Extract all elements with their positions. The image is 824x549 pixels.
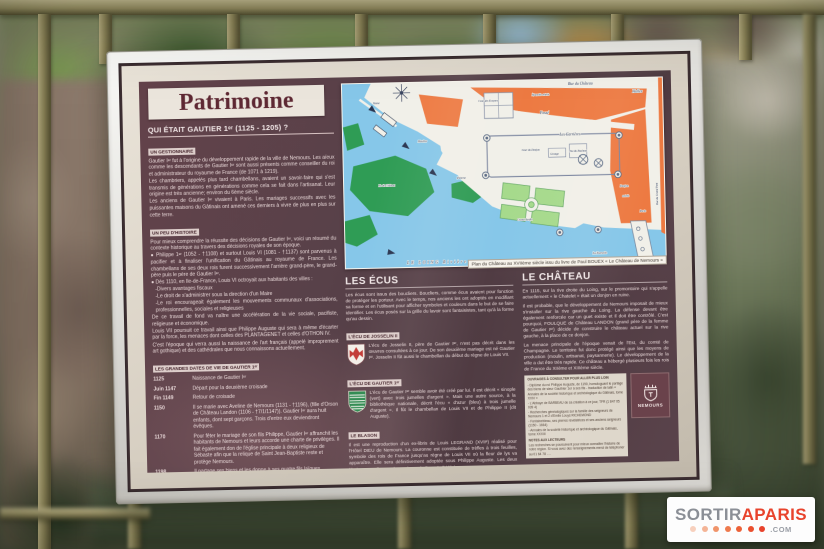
chateau-heading: LE CHÂTEAU — [522, 269, 667, 285]
section-label-josselin: L'ÉCU DE JOSSELIN II — [346, 332, 399, 340]
watermark-sortir: SORTIR — [675, 505, 742, 524]
photo-scene: Patrimoine QUI ÉTAIT GAUTIER 1ᵉʳ (1125 -… — [0, 0, 824, 549]
panel-right-column: Rue du Château Nouvelle entrée Halles Fo… — [341, 76, 671, 462]
paragraph: Les anciens de Gautier Iᵉʳ vivaient à Pa… — [149, 195, 335, 219]
references-row: OUVRAGES À CONSULTER POUR ALLER PLUS LOI… — [524, 373, 671, 459]
timeline-date: 1198 — [155, 469, 190, 473]
timeline-date: Juin 1147 — [153, 386, 188, 393]
map-label: Rue du Château — [567, 81, 593, 86]
reference-item: - Annales de la société historique et ar… — [528, 426, 624, 437]
watermark-text: SORTIRAPARIS — [675, 506, 807, 523]
map-label: Porte — [639, 210, 647, 213]
timeline-event: Pour fêter le mariage de son fils Philip… — [193, 430, 341, 466]
board-mat: Patrimoine QUI ÉTAIT GAUTIER 1ᵉʳ (1125 -… — [121, 54, 696, 489]
board-frame: Patrimoine QUI ÉTAIT GAUTIER 1ᵉʳ (1125 -… — [106, 39, 712, 505]
panel-left-column: Patrimoine QUI ÉTAIT GAUTIER 1ᵉʳ (1125 -… — [147, 84, 341, 467]
timeline-table: 1125 Naissance de Gautier Iᵉʳ Juin 1147 … — [153, 373, 342, 473]
paragraph: Les écus sont issus des boucliers. Boucl… — [345, 289, 514, 323]
watermark-dot — [736, 526, 742, 532]
map-label: Poterne — [456, 177, 467, 180]
map-label: Grange — [550, 153, 559, 156]
fence-lower-rail — [0, 508, 150, 519]
ecu-gautier-row: L'écu de Gautier Iᵉʳ semble avoir été cr… — [348, 387, 517, 424]
watermark-dot — [690, 526, 696, 532]
map-label: entrée — [622, 195, 630, 198]
board-panel: Patrimoine QUI ÉTAIT GAUTIER 1ᵉʳ (1125 -… — [139, 70, 679, 473]
watermark-dot — [713, 526, 719, 532]
panel-title: Patrimoine — [148, 85, 325, 120]
timeline-date: 1125 — [153, 376, 188, 383]
fence-bar — [38, 14, 51, 549]
timeline-event: Il se marie avec Aveline de Nemours (113… — [193, 401, 341, 430]
section-label-gestionnaire: UN GESTIONNAIRE — [148, 147, 195, 155]
fence-bar — [803, 14, 816, 464]
map-label: Cour du Donjon — [522, 149, 541, 152]
watermark-row2: .COM — [690, 525, 792, 534]
map-label: Les Carrières — [559, 132, 582, 137]
map-label: Moulins — [417, 140, 427, 143]
timeline-event: Il partage ses biens et les donne à ses … — [194, 466, 341, 473]
section-label-grandes-dates: LES GRANDES DATES DE VIE DE GAUTIER 1ᵉʳ — [153, 364, 259, 373]
watermark-dot — [759, 526, 765, 532]
map-label: Jeu du Paulmes — [569, 149, 587, 152]
chateau-map-svg: Rue du Château Nouvelle entrée Halles Fo… — [342, 77, 666, 268]
map-label: Grand Jardin — [517, 218, 533, 221]
timeline-event: Naissance de Gautier Iᵉʳ — [192, 373, 339, 383]
watermark-com: .COM — [770, 525, 792, 534]
notes-text: Les recherches se poursuivent pour mieux… — [529, 441, 625, 457]
board-frame-gap: Patrimoine QUI ÉTAIT GAUTIER 1ᵉʳ (1125 -… — [118, 51, 699, 492]
ecu-josselin-row: L'écu de Josselin II, père de Gautier Iᵉ… — [347, 340, 516, 372]
map-label: Nouvelle entrée — [531, 94, 550, 97]
references-box: OUVRAGES À CONSULTER POUR ALLER PLUS LOI… — [524, 374, 628, 459]
paragraph: En 1115, sur la rive droite du Loing, su… — [522, 285, 667, 300]
information-board: Patrimoine QUI ÉTAIT GAUTIER 1ᵉʳ (1125 -… — [106, 39, 712, 505]
nemours-logo-label: NEMOURS — [638, 402, 663, 408]
panel-lower-columns: LES ÉCUS Les écus sont issus des bouclie… — [345, 269, 671, 462]
ecus-heading: LES ÉCUS — [345, 273, 513, 290]
sortiraparis-watermark: SORTIRAPARIS .COM — [667, 497, 815, 542]
watermark-aparis: APARIS — [742, 505, 807, 524]
fence-post-below — [625, 488, 638, 549]
paragraph: L'écu de Gautier Iᵉʳ semble avoir été cr… — [370, 387, 517, 421]
map-label: Vanne — [373, 102, 381, 105]
map-label: Donjon — [619, 185, 629, 188]
compass-rose-icon — [393, 84, 411, 102]
timeline-event: Retour de croisade — [193, 392, 340, 402]
watermark-dots — [690, 526, 765, 532]
map-label: Cour des Ecuyers — [478, 100, 498, 103]
paragraph: ● Philippe 1ᵉʳ (1052 - †1108) et surtout… — [151, 249, 338, 279]
map-label: Halles — [631, 90, 643, 94]
ecus-section: LES ÉCUS Les écus sont issus des bouclie… — [345, 273, 517, 463]
fence-top-rail — [0, 0, 824, 15]
fence-post-below — [398, 491, 411, 549]
watermark-dot — [725, 526, 731, 532]
map-label: Fossé — [539, 111, 549, 115]
paragraph: Il est une reproduction d'un ex-libris d… — [349, 439, 518, 473]
panel-question-heading: QUI ÉTAIT GAUTIER 1ᵉʳ (1125 - 1205) ? — [148, 121, 334, 137]
josselin-shield-icon — [347, 343, 367, 371]
paragraph: Il est probable, que le développement de… — [523, 300, 669, 340]
map-label: Rue du Grand Pont — [655, 182, 658, 205]
nemours-crest-icon — [640, 383, 660, 401]
timeline-date: Fin 1149 — [154, 395, 189, 402]
gautier-shield-icon — [348, 390, 368, 423]
chateau-map: Rue du Château Nouvelle entrée Halles Fo… — [341, 76, 667, 269]
timeline-date: 1150 — [154, 405, 190, 432]
section-label-ecu-gautier: L'ÉCU DE GAUTIER 1ᵉʳ — [347, 379, 401, 387]
timeline-event: Départ pour la deuxième croisade — [192, 382, 339, 392]
chateau-section: LE CHÂTEAU En 1115, sur la rive droite d… — [522, 269, 671, 458]
reference-item: - Diplôme du roi Philippe Auguste, de 11… — [527, 381, 623, 401]
paragraph: La menace principale de l'époque venait … — [524, 339, 670, 373]
section-label-histoire: UN PEU D'HISTOIRE — [150, 228, 199, 236]
fence-bar — [739, 14, 752, 60]
section-label-blason: LE BLASON — [348, 432, 379, 440]
timeline-date: 1170 — [154, 434, 190, 467]
watermark-dot — [748, 526, 754, 532]
map-label: Ile du Château — [378, 184, 396, 187]
paragraph: L'écu de Josselin II, père de Gautier Iᵉ… — [369, 340, 516, 369]
nemours-logo: NEMOURS — [630, 373, 670, 419]
watermark-dot — [702, 526, 708, 532]
map-label: La Tournelle — [592, 252, 608, 255]
